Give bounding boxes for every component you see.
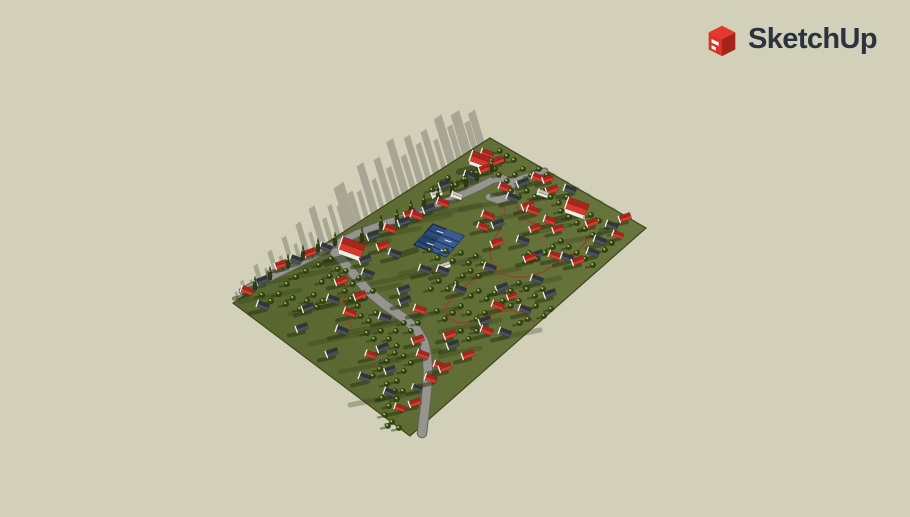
brand-wordmark: SketchUp xyxy=(748,23,877,56)
sketchup-logo[interactable]: SketchUp xyxy=(703,20,877,58)
sketchup-cube-icon xyxy=(703,20,741,58)
model-viewport[interactable] xyxy=(0,0,910,512)
model-canvas xyxy=(0,0,910,512)
